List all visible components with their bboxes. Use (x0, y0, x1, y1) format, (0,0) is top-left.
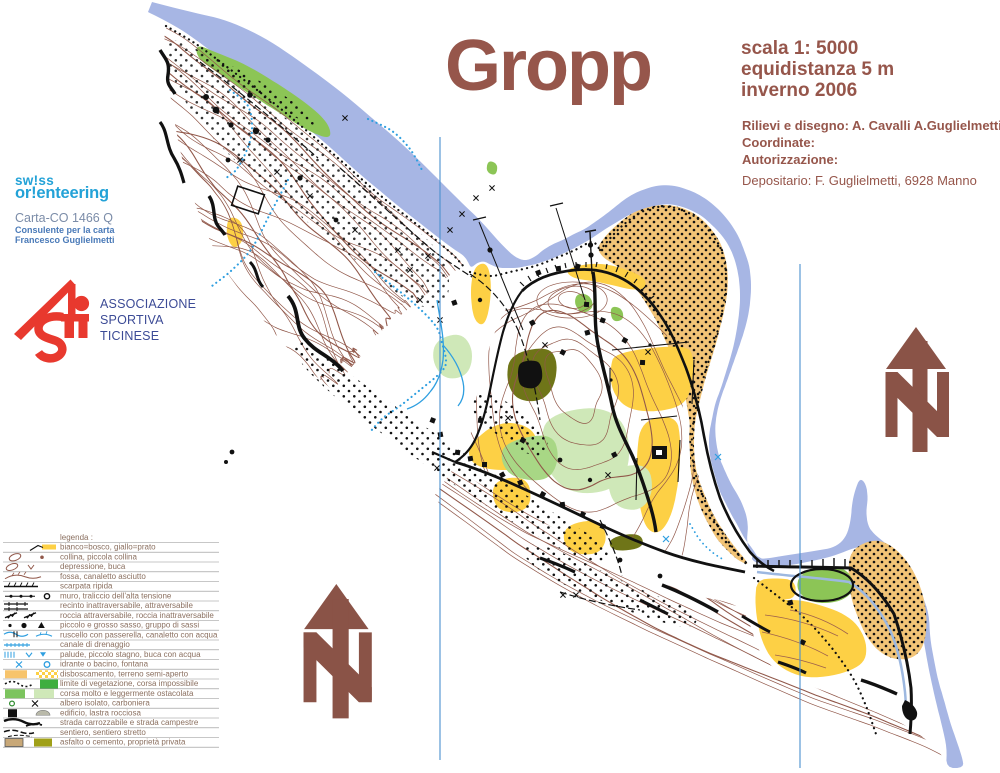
svg-text:ruscello con passerella, canal: ruscello con passerella, canaletto con a… (60, 630, 218, 639)
svg-text:strada carrozzabile e strada c: strada carrozzabile e strada campestre (60, 718, 199, 727)
svg-text:albero isolato, carboniera: albero isolato, carboniera (60, 699, 150, 708)
svg-text:bianco=bosco, giallo=prato: bianco=bosco, giallo=prato (60, 543, 156, 552)
svg-text:muro, traliccio dell'alta tens: muro, traliccio dell'alta tensione (60, 591, 172, 600)
svg-text:collina, piccola collina: collina, piccola collina (60, 552, 137, 561)
svg-text:sentiero, sentiero stretto: sentiero, sentiero stretto (60, 728, 146, 737)
svg-text:legenda :: legenda : (60, 533, 93, 542)
svg-text:canale di drenaggio: canale di drenaggio (60, 640, 130, 649)
svg-text:disboscamento, terreno semi-ap: disboscamento, terreno semi-aperto (60, 669, 189, 678)
svg-text:recinto inattraversabile, attr: recinto inattraversabile, attraversabile (60, 601, 194, 610)
svg-text:limite di vegetazione, corsa i: limite di vegetazione, corsa impossibile (60, 679, 199, 688)
svg-text:scarpata ripida: scarpata ripida (60, 582, 113, 591)
svg-text:depressione, buca: depressione, buca (60, 562, 126, 571)
svg-text:palude, piccolo stagno, buca c: palude, piccolo stagno, buca con acqua (60, 650, 201, 659)
svg-text:edificio, lastra rocciosa: edificio, lastra rocciosa (60, 708, 141, 717)
svg-text:piccolo e grosso sasso, gruppo: piccolo e grosso sasso, gruppo di sassi (60, 621, 199, 630)
svg-text:fossa, canaletto asciutto: fossa, canaletto asciutto (60, 572, 146, 581)
svg-text:asfalto o cemento, proprietà p: asfalto o cemento, proprietà privata (60, 738, 186, 747)
svg-text:corsa molto e leggermente osta: corsa molto e leggermente ostacolata (60, 689, 194, 698)
svg-text:roccia attraversabile, roccia: roccia attraversabile, roccia inattraver… (60, 611, 214, 620)
svg-text:idrante o bacino, fontana: idrante o bacino, fontana (60, 660, 149, 669)
